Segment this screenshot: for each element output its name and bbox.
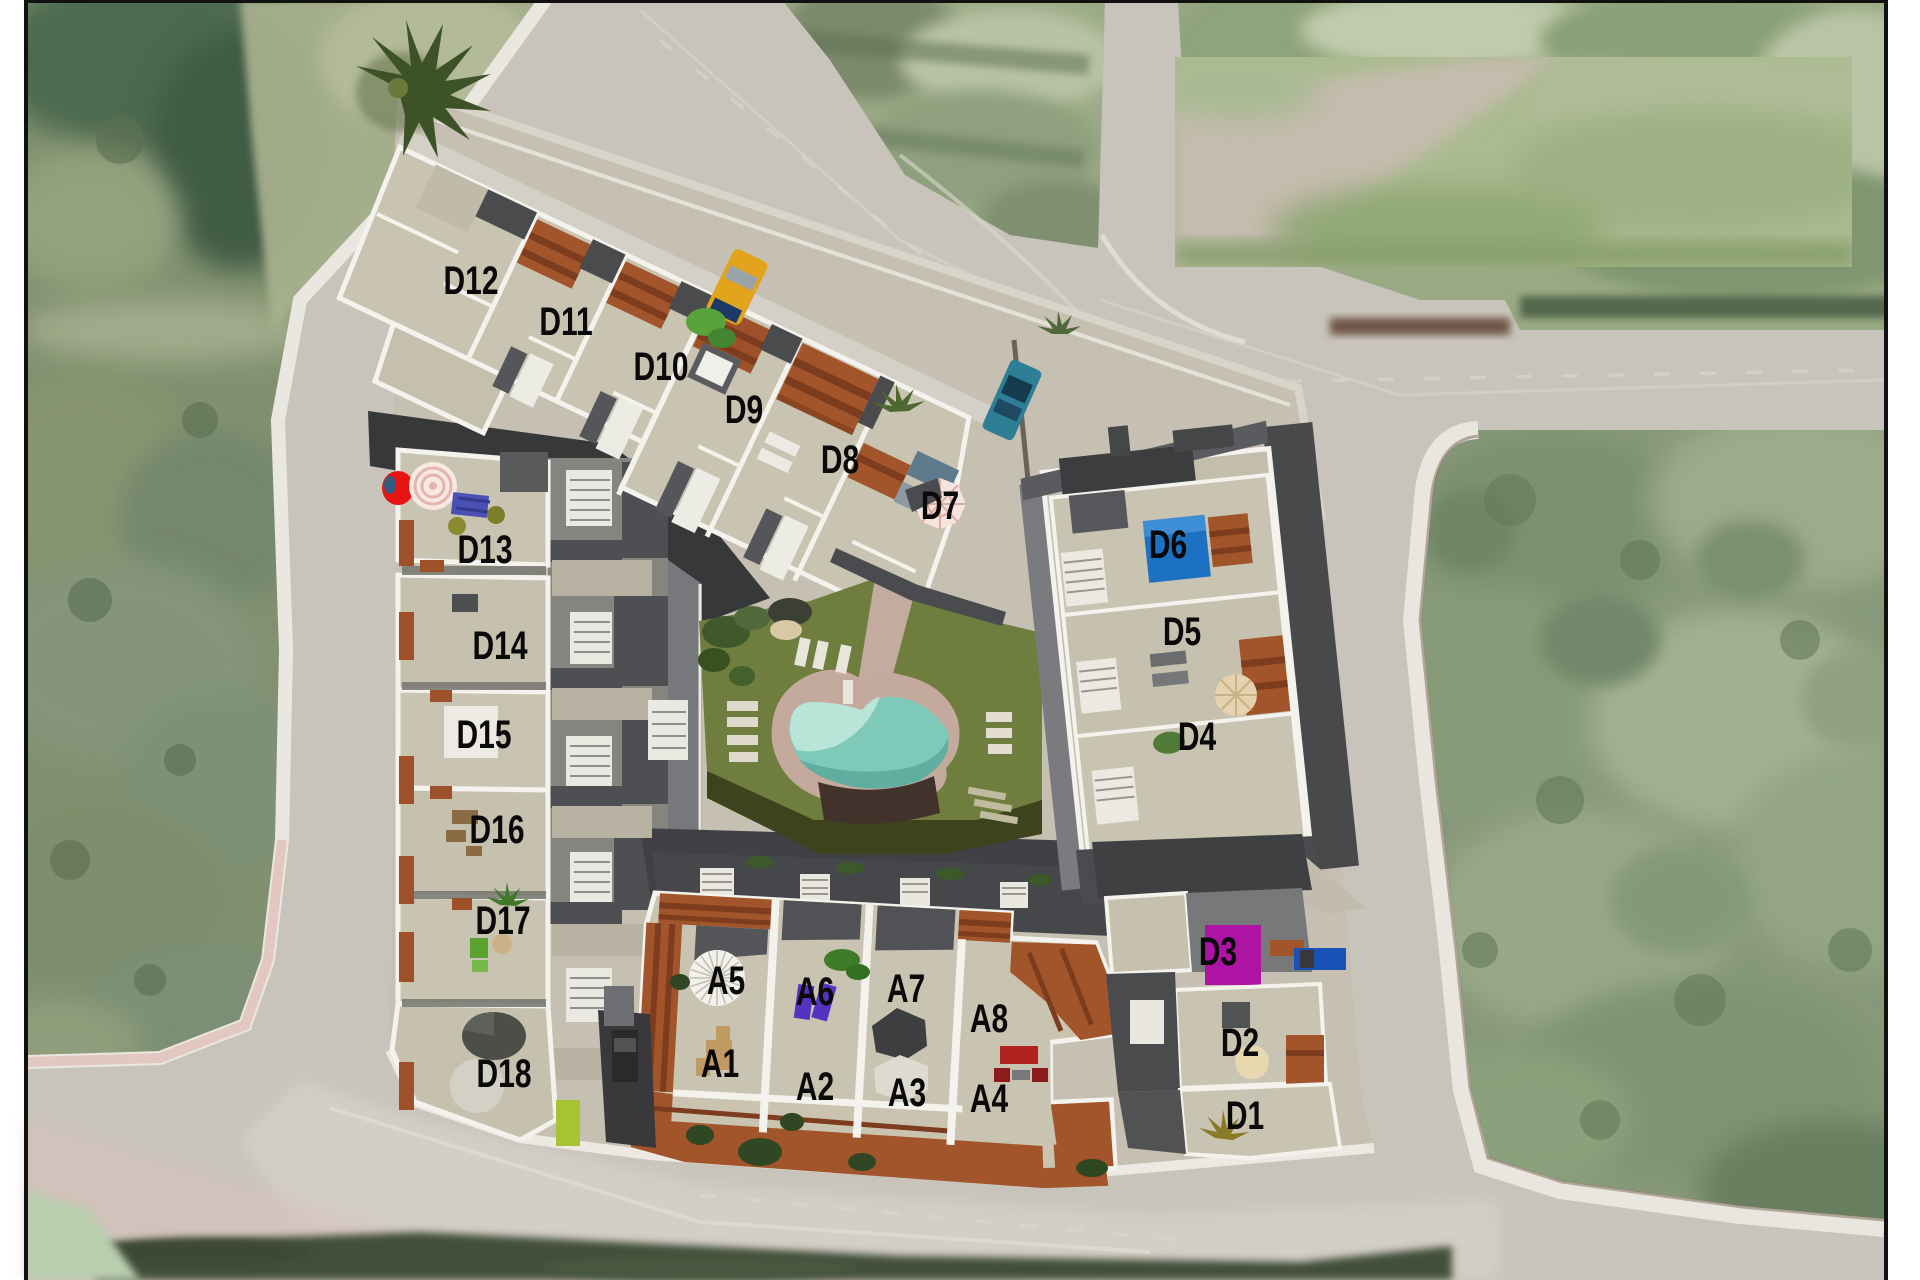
svg-text:D3: D3 [1199, 930, 1237, 974]
svg-text:D15: D15 [456, 713, 511, 757]
svg-text:D7: D7 [921, 484, 959, 528]
svg-text:A1: A1 [701, 1042, 739, 1086]
svg-text:A8: A8 [970, 997, 1008, 1041]
svg-text:D17: D17 [475, 899, 530, 943]
svg-text:D9: D9 [725, 388, 763, 432]
svg-text:D16: D16 [469, 808, 524, 852]
svg-text:D14: D14 [472, 624, 527, 668]
svg-text:D12: D12 [443, 259, 498, 303]
svg-text:D13: D13 [457, 528, 512, 572]
svg-text:D10: D10 [633, 345, 688, 389]
svg-text:A3: A3 [888, 1071, 926, 1115]
svg-text:D6: D6 [1149, 523, 1187, 567]
svg-text:A7: A7 [887, 967, 925, 1011]
svg-text:A6: A6 [796, 970, 834, 1014]
svg-text:A4: A4 [970, 1077, 1009, 1121]
svg-text:D5: D5 [1163, 610, 1201, 654]
svg-text:D2: D2 [1221, 1021, 1259, 1065]
svg-text:A5: A5 [707, 959, 745, 1003]
svg-text:D4: D4 [1178, 715, 1217, 759]
svg-text:D1: D1 [1226, 1094, 1264, 1138]
svg-text:D8: D8 [821, 438, 859, 482]
svg-text:A2: A2 [796, 1065, 834, 1109]
svg-text:D18: D18 [476, 1052, 531, 1096]
svg-text:D11: D11 [539, 300, 592, 344]
